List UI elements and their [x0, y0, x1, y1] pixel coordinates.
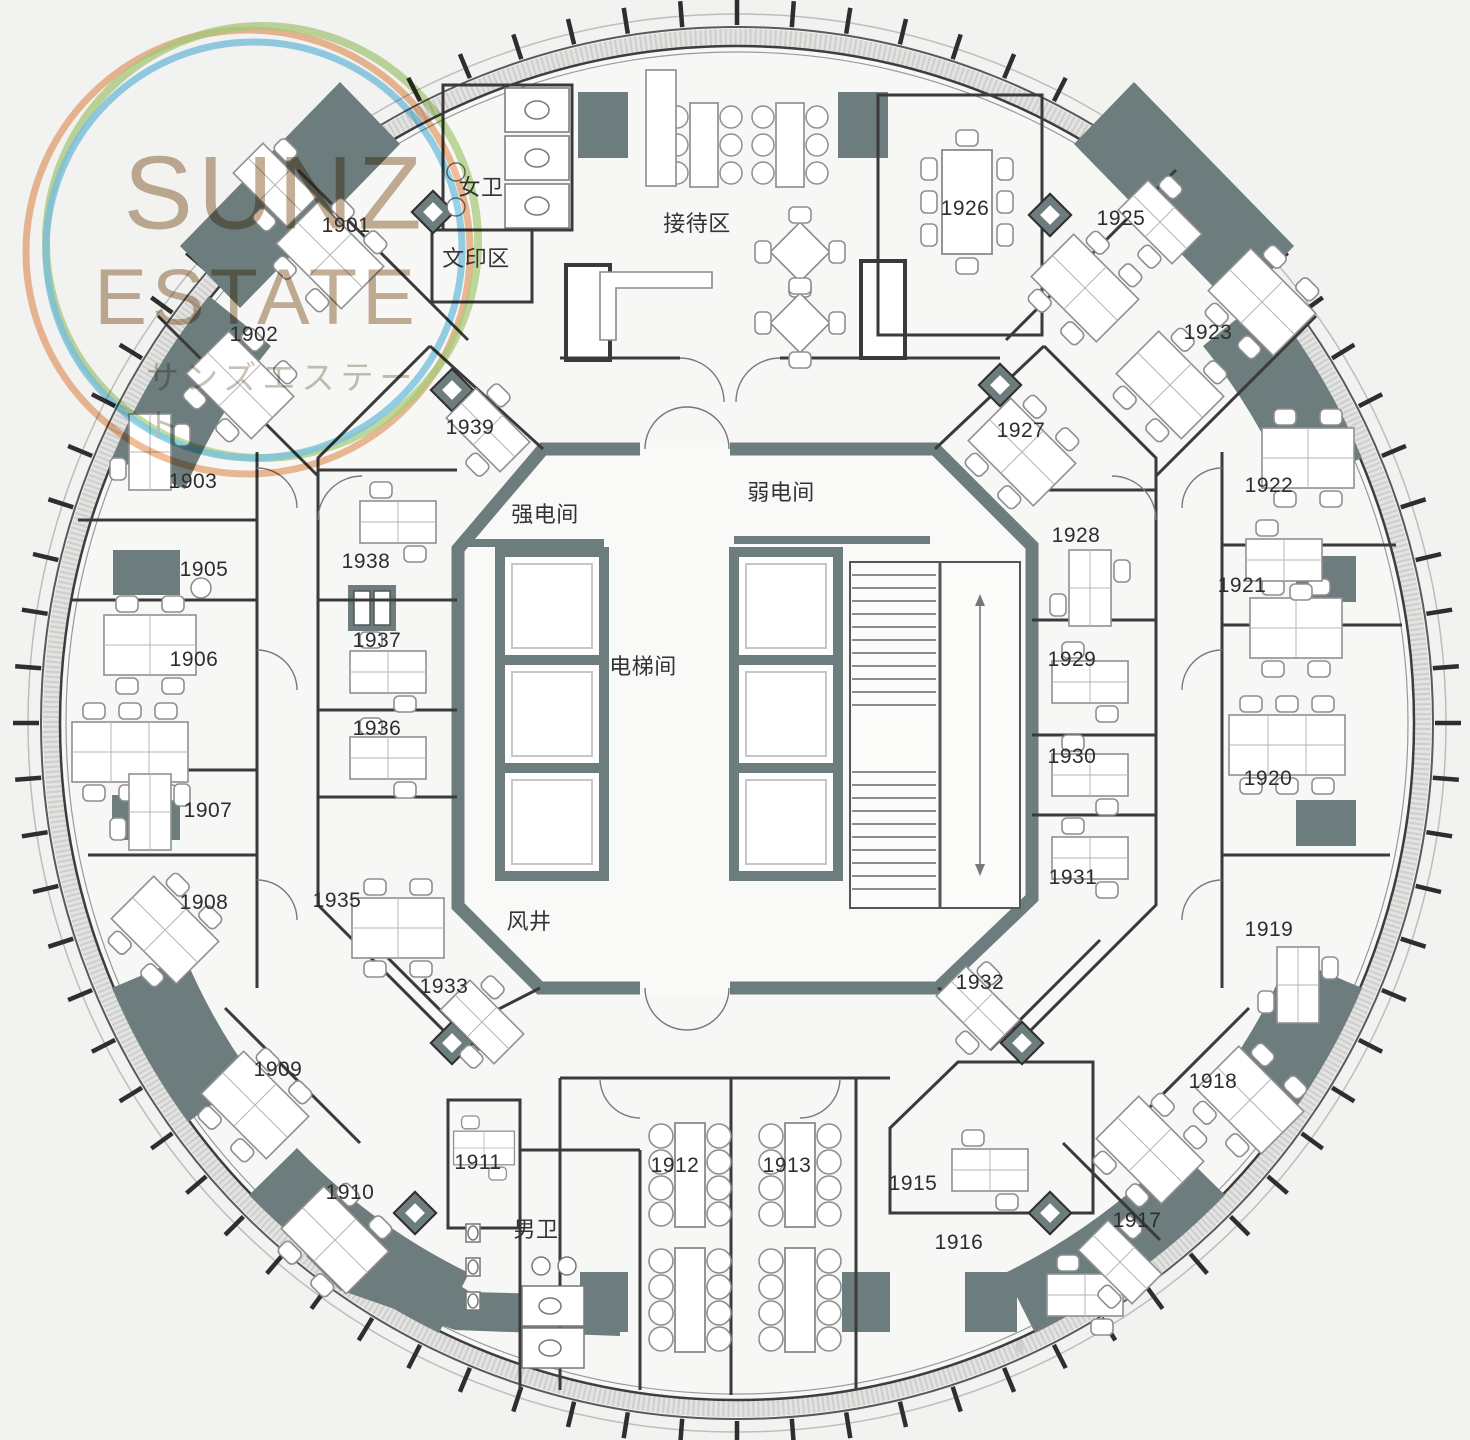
watermark-logo: SUNZ ESTATE サンズエステート	[0, 0, 560, 560]
logo-title-line2: ESTATE	[94, 251, 420, 343]
floor-plan-canvas: SUNZ ESTATE サンズエステート 1901 1902 1903 1905…	[0, 0, 1470, 1440]
stairwell	[850, 562, 1020, 908]
logo-subtitle: サンズエステート	[146, 351, 422, 447]
elevator-bank-left	[500, 552, 604, 876]
logo-title-line1: SUNZ	[123, 135, 426, 254]
elevator-bank-right	[734, 552, 838, 876]
